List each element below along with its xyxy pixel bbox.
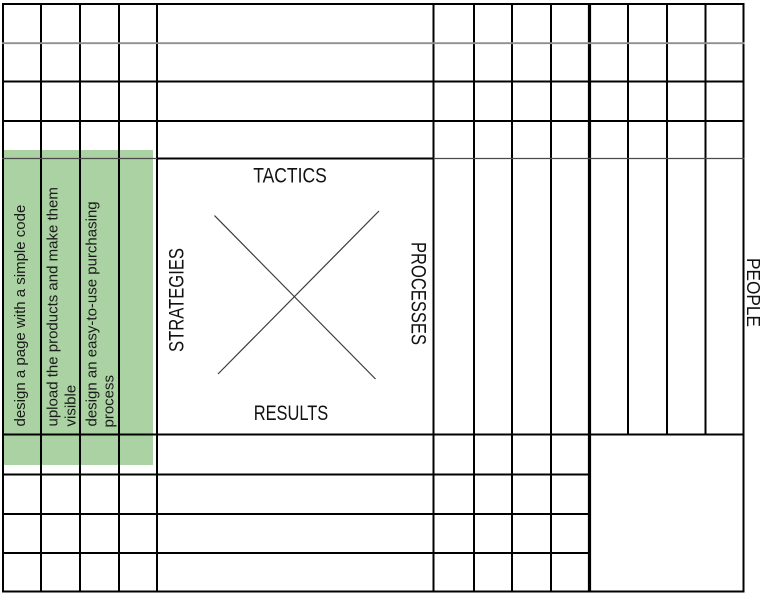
svg-text:design an easy-to-use purchasi: design an easy-to-use purchasing [84,201,101,426]
svg-text:visible: visible [63,385,80,427]
svg-text:RESULTS: RESULTS [254,402,329,425]
svg-text:PROCESSES: PROCESSES [407,242,430,345]
svg-text:upload the products and make t: upload the products and make them [45,187,62,426]
svg-text:PEOPLE: PEOPLE [743,258,763,327]
svg-text:process: process [101,375,118,428]
svg-text:design a page with a simple co: design a page with a simple code [12,205,29,427]
svg-text:STRATEGIES: STRATEGIES [166,248,189,352]
svg-text:TACTICS: TACTICS [253,165,327,188]
